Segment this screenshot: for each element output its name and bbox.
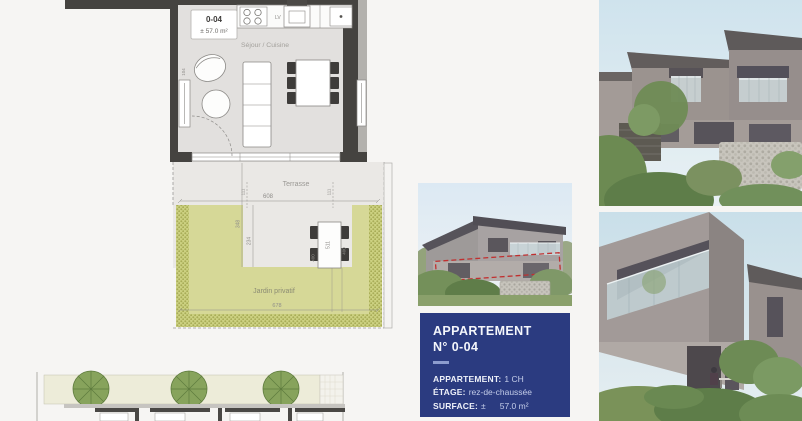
dim-table-width-left: 400 bbox=[311, 254, 316, 262]
balcony-glass bbox=[510, 243, 560, 255]
dim-terrace-depth: 348 bbox=[236, 220, 242, 229]
radiator-dim: 104 bbox=[181, 68, 186, 76]
sofa bbox=[243, 62, 271, 147]
radiator-left bbox=[179, 80, 190, 127]
dim-terrace-side-right: 111 bbox=[327, 188, 332, 195]
sink-icon bbox=[284, 0, 310, 27]
side-table bbox=[202, 90, 230, 118]
dishwasher-label: LV bbox=[275, 15, 281, 21]
neighbor-pillar bbox=[384, 163, 392, 328]
detail-label: SURFACE: bbox=[433, 401, 478, 411]
stove-icon bbox=[240, 7, 267, 26]
dim-terrace-side-left: 111 bbox=[241, 188, 246, 195]
title-underline bbox=[433, 361, 449, 364]
terrace-label: Terrasse bbox=[283, 181, 310, 188]
apartment-info-panel: APPARTEMENT N° 0-04 APPARTEMENT:1 CH ÉTA… bbox=[420, 313, 570, 417]
hob-dot-icon bbox=[340, 15, 343, 18]
balcony-glass bbox=[737, 66, 789, 102]
terrace-slider-window bbox=[192, 153, 340, 161]
detail-value: rez-de-chaussée bbox=[469, 387, 532, 397]
detail-value: 1 CH bbox=[504, 374, 523, 384]
radiator-right bbox=[357, 80, 366, 126]
detail-row-floor: ÉTAGE:rez-de-chaussée bbox=[433, 386, 562, 399]
photo-townhouses-garden bbox=[599, 0, 802, 206]
living-kitchen-label: Séjour / Cuisine bbox=[241, 42, 289, 49]
panel-title-line1: APPARTEMENT bbox=[433, 324, 562, 340]
panel-title-line2: N° 0-04 bbox=[433, 340, 562, 356]
dim-table-width-right: 400 bbox=[342, 247, 347, 255]
dim-terrace-width: 608 bbox=[263, 194, 274, 200]
site-plan bbox=[37, 371, 345, 421]
floor-plan: LV 0-04 ± 57.0 m² Séjour / Cuisine bbox=[0, 0, 410, 421]
photo-house-balcony bbox=[599, 212, 802, 421]
detail-label: APPARTEMENT: bbox=[433, 374, 501, 384]
detail-row-bedrooms: APPARTEMENT:1 CH bbox=[433, 373, 562, 386]
detail-value-2: 57.0 m² bbox=[500, 401, 529, 411]
detail-value: ± bbox=[481, 401, 486, 411]
unit-badge: 0-04 ± 57.0 m² bbox=[191, 10, 237, 39]
unit-area: ± 57.0 m² bbox=[200, 28, 228, 35]
unit-number: 0-04 bbox=[206, 15, 223, 24]
tree-icon bbox=[263, 371, 299, 407]
dim-terrace-depth-inner: 234 bbox=[247, 237, 253, 246]
tree-icon bbox=[73, 371, 109, 407]
dim-table-length: 511 bbox=[326, 241, 332, 249]
detail-row-surface: SURFACE:±57.0 m² bbox=[433, 400, 562, 413]
panel-details: APPARTEMENT:1 CH ÉTAGE:rez-de-chaussée S… bbox=[433, 373, 562, 413]
detail-label: ÉTAGE: bbox=[433, 387, 466, 397]
dining-table bbox=[287, 60, 339, 106]
listing-sheet: LV 0-04 ± 57.0 m² Séjour / Cuisine bbox=[0, 0, 802, 421]
card-photo-building-render bbox=[418, 183, 572, 306]
garden-label: Jardin privatif bbox=[253, 288, 295, 295]
tree-icon bbox=[171, 371, 207, 407]
dim-garden-width: 678 bbox=[272, 303, 281, 309]
